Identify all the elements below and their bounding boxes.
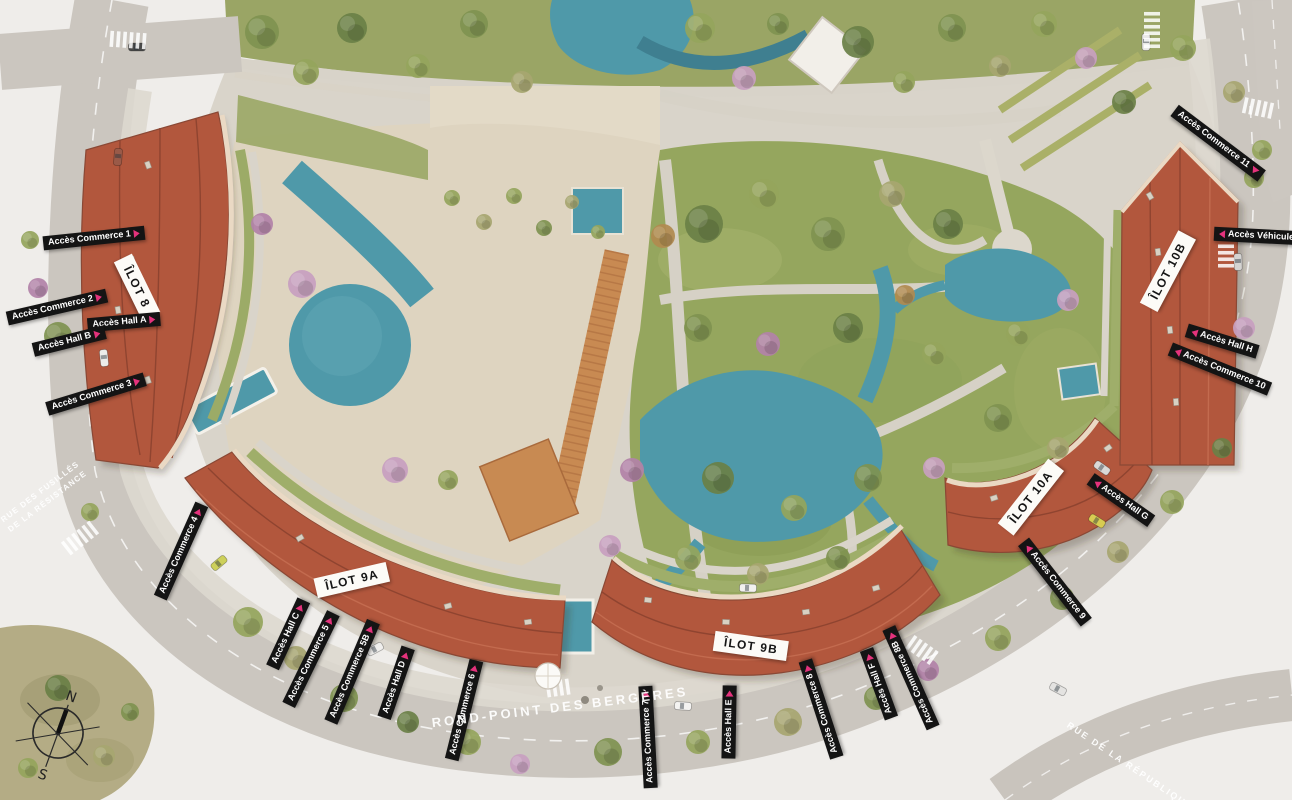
access-arrow-icon: [865, 653, 875, 661]
access-arrow-icon: [325, 616, 335, 625]
compass-north-label: N: [63, 688, 78, 707]
access-arrow-icon: [93, 329, 101, 338]
site-plan-rendering: [0, 0, 1292, 800]
compass-south-label: S: [36, 766, 50, 783]
access-arrow-icon: [725, 690, 733, 696]
access-arrow-icon: [1174, 347, 1183, 357]
access-arrow-icon: [295, 604, 305, 613]
access-arrow-icon: [803, 664, 812, 672]
access-arrow-icon: [1190, 328, 1198, 337]
masterplan-canvas: ÎLOT 8 ÎLOT 9A ÎLOT 9B ÎLOT 10A ÎLOT 10B…: [0, 0, 1292, 800]
access-arrow-icon: [1219, 230, 1225, 238]
access-arrow-icon: [1249, 165, 1259, 175]
access-arrow-icon: [887, 631, 897, 640]
access-arrow-icon: [470, 664, 479, 672]
compass-rose-icon: N S: [13, 683, 103, 783]
access-arrow-icon: [194, 507, 204, 516]
access-arrow-icon: [133, 229, 140, 238]
access-arrow-icon: [401, 652, 411, 660]
access-arrow-icon: [95, 293, 103, 302]
access-arrow-icon: [365, 625, 375, 634]
access-label: Accès Hall E: [721, 685, 736, 758]
access-arrow-icon: [149, 315, 156, 323]
access-arrow-icon: [133, 377, 141, 386]
